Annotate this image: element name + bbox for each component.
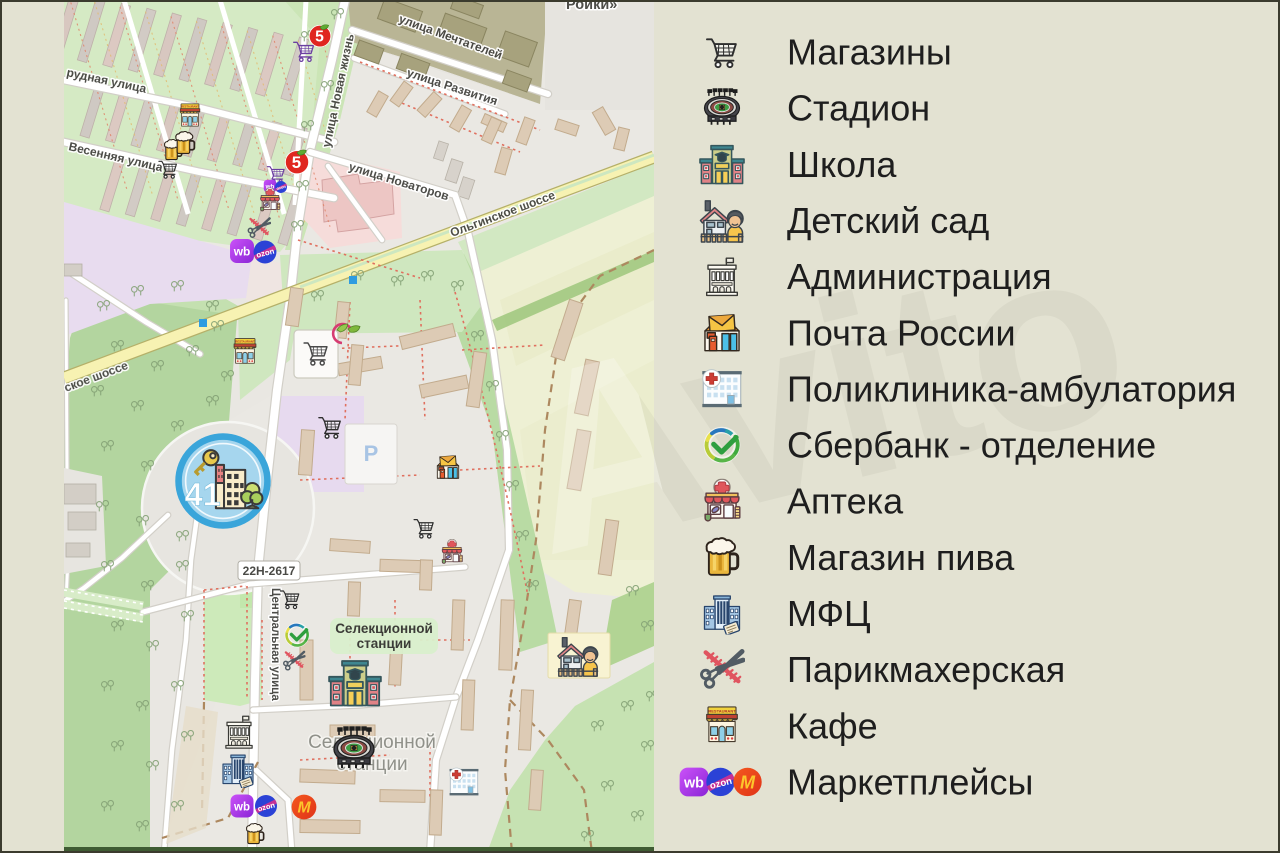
svg-text:Кафе: Кафе <box>787 705 878 746</box>
svg-text:Школа: Школа <box>787 144 897 185</box>
svg-text:Почта России: Почта России <box>787 312 1016 353</box>
svg-text:Администрация: Администрация <box>787 256 1052 297</box>
svg-text:22Н-2617: 22Н-2617 <box>243 564 296 578</box>
svg-text:Маркетплейсы: Маркетплейсы <box>787 761 1033 802</box>
svg-text:Детский сад: Детский сад <box>787 200 989 241</box>
svg-text:P: P <box>364 441 379 466</box>
svg-text:Магазин пива: Магазин пива <box>787 537 1015 578</box>
svg-text:станции: станции <box>357 636 412 651</box>
svg-text:Селекционной: Селекционной <box>335 621 433 636</box>
svg-text:МФЦ: МФЦ <box>787 593 871 634</box>
svg-text:Магазины: Магазины <box>787 32 952 73</box>
svg-text:Центральная улица: Центральная улица <box>269 588 281 701</box>
svg-text:Стадион: Стадион <box>787 88 930 129</box>
svg-text:Поликлиника-амбулатория: Поликлиника-амбулатория <box>787 368 1236 409</box>
svg-text:Сбербанк - отделение: Сбербанк - отделение <box>787 425 1156 466</box>
svg-text:Парикмахерская: Парикмахерская <box>787 649 1065 690</box>
svg-text:Аптека: Аптека <box>787 481 904 522</box>
